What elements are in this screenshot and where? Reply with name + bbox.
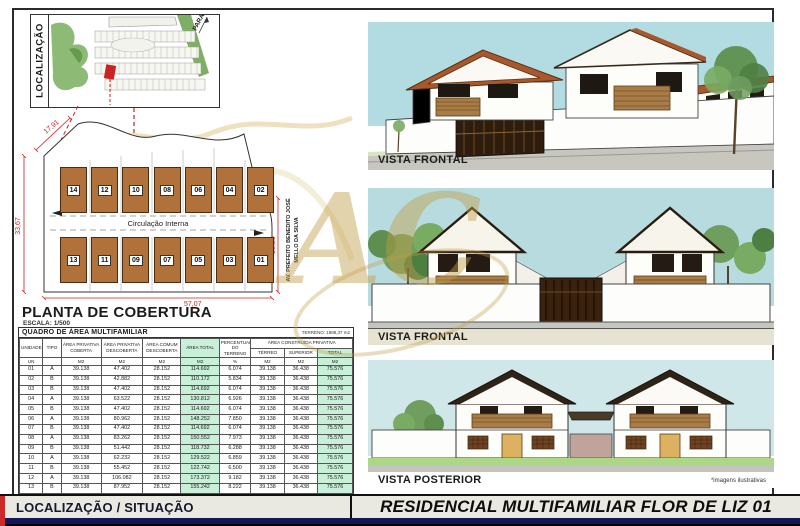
area-cell: 39.138 [61, 405, 101, 415]
area-cell: 47.402 [101, 405, 143, 415]
area-cell: 8.222 [219, 483, 251, 493]
unit-header: M2 [251, 358, 284, 366]
area-cell: A [43, 474, 61, 484]
area-cell: 28.152 [143, 375, 181, 385]
area-cell: 114.692 [181, 365, 219, 375]
area-cell: A [43, 415, 61, 425]
unit-block-top: 04 [216, 167, 243, 213]
unit-header: % [219, 358, 251, 366]
unit-block-bottom: 11 [91, 237, 118, 283]
area-cell: 07 [20, 424, 43, 434]
area-cell: 42.882 [101, 375, 143, 385]
area-cell: B [43, 424, 61, 434]
unit-block-top: 10 [122, 167, 149, 213]
area-cell: 130.812 [181, 395, 219, 405]
area-cell: 75.576 [317, 444, 352, 454]
area-cell: 36.438 [284, 444, 317, 454]
area-cell: 28.152 [143, 365, 181, 375]
area-cell: 5.834 [219, 375, 251, 385]
area-cell: 36.438 [284, 434, 317, 444]
title-block-right-cell: RESIDENCIAL MULTIFAMILIAR FLOR DE LIZ 01 [352, 496, 800, 518]
area-cell: 36.438 [284, 483, 317, 493]
unit-number: 12 [98, 185, 112, 196]
area-cell: 11 [20, 464, 43, 474]
footer-navy-bar [0, 518, 800, 526]
area-cell: B [43, 375, 61, 385]
area-cell: 39.138 [251, 405, 284, 415]
unit-block-bottom: 01 [247, 237, 274, 283]
area-cell: 6.859 [219, 454, 251, 464]
col-header: ÁREA TOTAL [181, 339, 219, 358]
area-cell: 150.552 [181, 434, 219, 444]
area-cell: 36.438 [284, 375, 317, 385]
area-cell: 28.152 [143, 483, 181, 493]
area-cell: 75.576 [317, 424, 352, 434]
col-header: UNIDADE [20, 339, 43, 358]
area-cell: 47.402 [101, 385, 143, 395]
elevation-posterior: VISTA POSTERIOR [368, 360, 774, 488]
area-cell: 122.742 [181, 464, 219, 474]
area-cell: 75.576 [317, 464, 352, 474]
area-cell: 55.452 [101, 464, 143, 474]
area-cell: 39.138 [251, 454, 284, 464]
area-cell: B [43, 464, 61, 474]
area-cell: 36.438 [284, 385, 317, 395]
area-cell: 06 [20, 415, 43, 425]
unit-block-top: 08 [154, 167, 181, 213]
localization-label-cell: LOCALIZAÇÃO [31, 15, 49, 107]
title-block: LOCALIZAÇÃO / SITUAÇÃO RESIDENCIAL MULTI… [0, 494, 800, 526]
area-cell: 08 [20, 434, 43, 444]
elevation-frontal-perspective: VISTA FRONTAL [368, 22, 774, 170]
area-cell: 6.074 [219, 365, 251, 375]
area-cell: 39.138 [61, 395, 101, 405]
group-header: ÁREA CONSTRUÍDA PRIVATIVA [251, 339, 353, 349]
area-cell: 155.242 [181, 483, 219, 493]
table-row: 08A39.13883.26228.152150.5527.97339.1383… [20, 434, 353, 444]
vista-label-strip: VISTA FRONTAL [368, 328, 774, 345]
area-cell: 05 [20, 405, 43, 415]
area-cell: 39.138 [61, 474, 101, 484]
area-cell: 118.732 [181, 444, 219, 454]
unit-header: M2 [101, 358, 143, 366]
table-row: 02B39.13842.88228.152110.1725.83439.1383… [20, 375, 353, 385]
area-cell: 39.138 [251, 365, 284, 375]
col-header: TIPO [43, 339, 61, 358]
plan-title: PLANTA DE COBERTURA [22, 304, 212, 321]
area-cell: 36.438 [284, 405, 317, 415]
table-row: 11B39.13855.45228.152122.7426.50039.1383… [20, 464, 353, 474]
area-cell: 6.074 [219, 385, 251, 395]
area-cell: 87.952 [101, 483, 143, 493]
area-cell: 01 [20, 365, 43, 375]
area-cell: 148.252 [181, 415, 219, 425]
plan-scale: ESCALA: 1/500 [23, 320, 70, 327]
table-row: 03B39.13847.40228.152114.6926.07439.1383… [20, 385, 353, 395]
area-cell: 39.138 [61, 464, 101, 474]
area-cell: 28.152 [143, 474, 181, 484]
area-cell: A [43, 395, 61, 405]
unit-block-top: 14 [60, 167, 87, 213]
area-cell: 114.692 [181, 424, 219, 434]
unit-header: M2 [143, 358, 181, 366]
unit-number: 05 [191, 255, 205, 266]
area-cell: 39.138 [251, 464, 284, 474]
unit-header: UN [20, 358, 43, 366]
area-cell: 36.438 [284, 474, 317, 484]
area-cell: 110.172 [181, 375, 219, 385]
col-header: PERCENTUAL DO TERRENO [219, 339, 251, 358]
area-cell: 75.576 [317, 365, 352, 375]
area-cell: 114.692 [181, 405, 219, 415]
terreno-value: TERRENO: 1888,37 m2 [302, 330, 350, 335]
area-cell: 39.138 [61, 375, 101, 385]
unit-block-bottom: 05 [185, 237, 212, 283]
area-cell: 6.074 [219, 405, 251, 415]
area-cell: 39.138 [251, 415, 284, 425]
area-cell: B [43, 385, 61, 395]
area-cell: 36.438 [284, 464, 317, 474]
vista-label: VISTA FRONTAL [378, 331, 468, 343]
col-header: SUPERIOR [284, 348, 317, 358]
area-cell: 02 [20, 375, 43, 385]
area-cell: 28.152 [143, 434, 181, 444]
area-cell: 39.138 [251, 444, 284, 454]
area-cell: 6.074 [219, 424, 251, 434]
area-cell: 36.438 [284, 415, 317, 425]
area-cell: 106.082 [101, 474, 143, 484]
area-cell: 75.576 [317, 385, 352, 395]
table-row: 10A39.13862.23228.152129.5226.85939.1383… [20, 454, 353, 464]
unit-number: 02 [254, 185, 268, 196]
unit-block-bottom: 07 [154, 237, 181, 283]
area-cell: 28.152 [143, 444, 181, 454]
area-cell: 10 [20, 454, 43, 464]
area-cell: 36.438 [284, 365, 317, 375]
area-cell: 47.402 [101, 365, 143, 375]
area-cell: 51.442 [101, 444, 143, 454]
area-cell: 75.576 [317, 434, 352, 444]
area-cell: 39.138 [61, 483, 101, 493]
area-cell: 28.152 [143, 395, 181, 405]
area-cell: 63.522 [101, 395, 143, 405]
area-cell: 39.138 [251, 474, 284, 484]
unit-number: 09 [129, 255, 143, 266]
area-cell: 36.438 [284, 395, 317, 405]
area-table-title: QUADRO DE ÁREA MULTIFAMILIAR [22, 329, 148, 336]
area-cell: 6.500 [219, 464, 251, 474]
unit-header: M2 [61, 358, 101, 366]
unit-number: 07 [160, 255, 174, 266]
area-cell: 13 [20, 483, 43, 493]
area-cell: 39.138 [251, 483, 284, 493]
area-cell: B [43, 483, 61, 493]
area-cell: 39.138 [61, 424, 101, 434]
area-cell: 75.576 [317, 483, 352, 493]
area-cell: 28.152 [143, 464, 181, 474]
area-cell: 83.262 [101, 434, 143, 444]
area-cell: 75.576 [317, 415, 352, 425]
area-cell: B [43, 444, 61, 454]
unit-number: 14 [67, 185, 81, 196]
vista-label: VISTA FRONTAL [378, 154, 468, 166]
area-cell: 173.372 [181, 474, 219, 484]
table-row: 12A39.138106.08228.152173.3729.18239.138… [20, 474, 353, 484]
area-cell: 75.576 [317, 454, 352, 464]
localization-map-box: LOCALIZAÇÃO [30, 14, 220, 108]
area-cell: 9.182 [219, 474, 251, 484]
unit-number: 08 [160, 185, 174, 196]
col-header: ÁREA PRIVATIVA COBERTA [61, 339, 101, 358]
area-cell: 39.138 [61, 434, 101, 444]
vista-label: VISTA POSTERIOR [378, 474, 482, 486]
area-cell: 39.138 [251, 424, 284, 434]
area-cell: A [43, 454, 61, 464]
area-cell: 04 [20, 395, 43, 405]
area-cell: 28.152 [143, 385, 181, 395]
unit-number: 03 [223, 255, 237, 266]
localization-label: LOCALIZAÇÃO [35, 16, 46, 106]
unit-header: M2 [317, 358, 352, 366]
area-cell: 36.438 [284, 424, 317, 434]
footer-red-edge [0, 496, 5, 526]
unit-number: 06 [191, 185, 205, 196]
area-cell: 75.576 [317, 375, 352, 385]
table-row: 01A39.13847.40228.152114.6926.07439.1383… [20, 365, 353, 375]
unit-number: 11 [98, 255, 111, 266]
table-row: 13B39.13887.95228.152155.2428.22239.1383… [20, 483, 353, 493]
area-cell: 39.138 [251, 375, 284, 385]
area-cell: 28.152 [143, 424, 181, 434]
elevation-frontal: VISTA FRONTAL [368, 188, 774, 344]
table-row: 04A39.13863.52228.152130.8126.92639.1383… [20, 395, 353, 405]
area-cell: 39.138 [61, 454, 101, 464]
col-header: ÁREA PRIVATIVA DESCOBERTA [101, 339, 143, 358]
table-row: 06A39.13880.96228.152148.2527.85039.1383… [20, 415, 353, 425]
area-cell: A [43, 434, 61, 444]
area-cell: 12 [20, 474, 43, 484]
localization-map-drawing: PARATY [49, 15, 219, 105]
area-cell: 80.962 [101, 415, 143, 425]
roof-plan: Circulação Interna 17,91 33,67 57,07 28,… [14, 110, 354, 310]
unit-block-top: 12 [91, 167, 118, 213]
col-header: TOTAL [317, 348, 352, 358]
unit-header: M2 [284, 358, 317, 366]
area-cell: 39.138 [61, 365, 101, 375]
area-cell: 129.522 [181, 454, 219, 464]
area-table: QUADRO DE ÁREA MULTIFAMILIAR TERRENO: 18… [18, 327, 354, 514]
area-cell: 36.438 [284, 454, 317, 464]
unit-block-bottom: 09 [122, 237, 149, 283]
area-cell: B [43, 405, 61, 415]
area-cell: 39.138 [61, 385, 101, 395]
unit-number: 01 [254, 255, 268, 266]
plan-units: 1412100806040213110907050301 [14, 110, 354, 310]
project-title: RESIDENCIAL MULTIFAMILIAR FLOR DE LIZ 01 [380, 497, 772, 517]
col-header: ÁREA COMUM DESCOBERTA [143, 339, 181, 358]
area-cell: 75.576 [317, 405, 352, 415]
unit-number: 10 [129, 185, 143, 196]
unit-block-top: 06 [185, 167, 212, 213]
area-cell: 114.692 [181, 385, 219, 395]
unit-number: 13 [67, 255, 81, 266]
unit-block-bottom: 13 [60, 237, 87, 283]
area-cell: 6.926 [219, 395, 251, 405]
area-table-grid: UNIDADE TIPO ÁREA PRIVATIVA COBERTA ÁREA… [19, 338, 353, 513]
area-cell: 75.576 [317, 395, 352, 405]
area-cell: 47.402 [101, 424, 143, 434]
area-cell: 75.576 [317, 474, 352, 484]
area-cell: 03 [20, 385, 43, 395]
area-cell: A [43, 365, 61, 375]
area-cell: 28.152 [143, 405, 181, 415]
area-cell: 28.152 [143, 415, 181, 425]
area-cell: 39.138 [61, 444, 101, 454]
quadro-body: 01A39.13847.40228.152114.6926.07439.1383… [20, 365, 353, 512]
area-cell: 28.152 [143, 454, 181, 464]
title-block-left-cell: LOCALIZAÇÃO / SITUAÇÃO [0, 496, 352, 518]
table-row: 05B39.13847.40228.152114.6926.07439.1383… [20, 405, 353, 415]
unit-block-top: 02 [247, 167, 274, 213]
illustrative-images-note: *imagens ilustrativas [711, 478, 766, 484]
area-cell: 7.973 [219, 434, 251, 444]
drawing-sheet: LOCALIZAÇÃO [12, 8, 774, 496]
unit-number: 04 [223, 185, 237, 196]
area-cell: 39.138 [251, 395, 284, 405]
area-cell: 6.288 [219, 444, 251, 454]
table-row: 07B39.13847.40228.152114.6926.07439.1383… [20, 424, 353, 434]
unit-header [43, 358, 61, 366]
area-cell: 09 [20, 444, 43, 454]
col-header: TÉRREO [251, 348, 284, 358]
unit-header: M2 [181, 358, 219, 366]
sheet-subject: LOCALIZAÇÃO / SITUAÇÃO [16, 500, 194, 515]
area-cell: 39.138 [251, 385, 284, 395]
table-row: 09B39.13851.44228.152118.7326.28839.1383… [20, 444, 353, 454]
unit-block-bottom: 03 [216, 237, 243, 283]
area-cell: 39.138 [61, 415, 101, 425]
area-cell: 39.138 [251, 434, 284, 444]
area-cell: 62.232 [101, 454, 143, 464]
area-cell: 7.850 [219, 415, 251, 425]
localization-map: PARATY [49, 15, 219, 107]
